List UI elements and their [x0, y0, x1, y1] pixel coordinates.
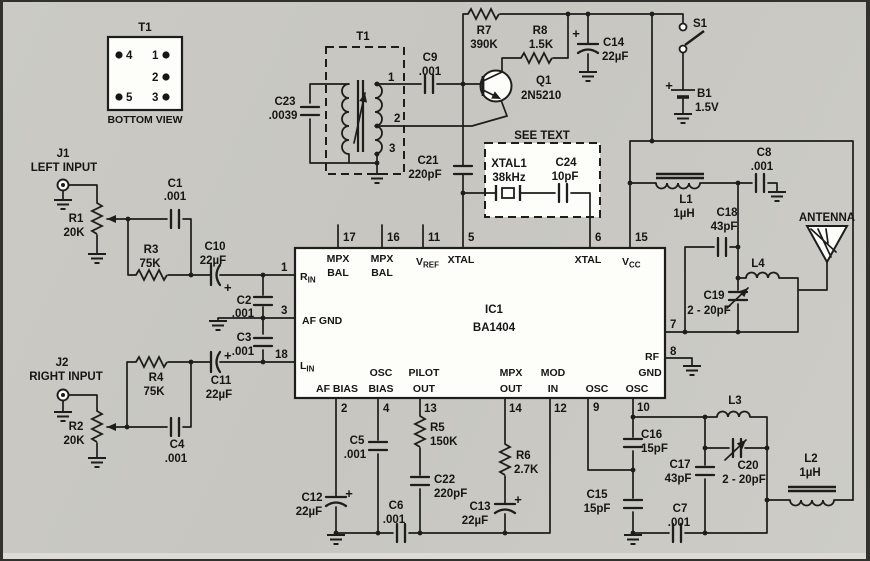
ground-icon — [209, 321, 227, 330]
ic-pin-name-bal17: BAL — [327, 267, 349, 279]
c19-ref: C19 — [703, 290, 724, 302]
r1-wiper-arrow — [107, 215, 116, 223]
ground-icon — [88, 254, 106, 263]
junction-dot — [261, 360, 266, 365]
c14-ref: C14 — [603, 37, 625, 49]
c1-ref: C1 — [168, 178, 183, 190]
ground-icon — [683, 366, 701, 375]
c3-symbol — [254, 338, 272, 346]
c15-ref: C15 — [586, 489, 608, 501]
ground-icon — [88, 458, 106, 467]
r6-value: 2.7K — [514, 464, 539, 476]
c6-value: .001 — [383, 514, 406, 526]
c5-value: .001 — [344, 449, 367, 461]
l2-core-bars — [788, 487, 836, 491]
c23-ref: C23 — [274, 96, 295, 108]
c12-symbol — [326, 497, 346, 506]
pin-10: 10 — [637, 402, 650, 414]
r2-value: 20K — [63, 435, 85, 447]
ic-pin-name-mpx16: MPX — [371, 253, 394, 265]
pin-3: 3 — [281, 305, 287, 317]
r5-value: 150K — [430, 436, 458, 448]
ic-pin-name-mod-in: IN — [548, 383, 559, 395]
c18-value: 43pF — [711, 221, 738, 233]
junction-dot — [628, 181, 633, 186]
r1-ref: R1 — [69, 213, 84, 225]
s1-ref: S1 — [693, 18, 708, 30]
pin-18: 18 — [275, 349, 288, 361]
ic-pin-name-osc9: OSC — [586, 383, 609, 395]
c24-ref: C24 — [555, 157, 577, 169]
l1-ref: L1 — [679, 194, 693, 206]
l4-ref: L4 — [751, 258, 765, 270]
c4-value: .001 — [165, 453, 188, 465]
c23-value: .0039 — [269, 110, 298, 122]
t1-tap1: 1 — [388, 72, 395, 84]
junction-dot — [736, 245, 741, 250]
junction-dot — [503, 531, 508, 536]
ic-pin-name-mpx-out: OUT — [500, 383, 523, 395]
ic-pin-name-rf-gnd: GND — [638, 367, 662, 379]
q1-transistor-symbol — [481, 71, 512, 103]
c14-polarity: + — [572, 26, 580, 41]
detail-ref: T1 — [138, 22, 152, 34]
schematic-paper: T1 4 1 2 5 3 BOTTOM VIEW J1 LEFT INPUT J… — [3, 2, 866, 553]
l2-coil — [790, 500, 834, 506]
c10-polarity: + — [224, 280, 232, 295]
c7-value: .001 — [668, 517, 691, 529]
junction-dot — [189, 360, 194, 365]
c3-value: .001 — [232, 346, 255, 358]
junction-dot — [375, 124, 380, 129]
c2-ref: C2 — [237, 295, 252, 307]
xtal1-ref: XTAL1 — [491, 158, 527, 170]
c9-ref: C9 — [423, 52, 438, 64]
junction-dot — [703, 531, 708, 536]
junction-dot — [461, 191, 466, 196]
r8-value: 1.5K — [529, 39, 554, 51]
junction-dot — [650, 139, 655, 144]
detail-pin2: 2 — [152, 72, 158, 84]
l1-core-bars — [656, 174, 704, 178]
r5-symbol — [415, 416, 425, 447]
l3-coil — [717, 412, 750, 418]
junction-dot — [375, 82, 380, 87]
c9-value: .001 — [419, 66, 442, 78]
c17-value: 43pF — [665, 473, 692, 485]
c13-value: 22µF — [462, 515, 488, 527]
t1-ref: T1 — [356, 31, 370, 43]
junction-dot — [631, 415, 636, 420]
junction-dot — [765, 498, 770, 503]
pin-15: 15 — [635, 232, 648, 244]
t1-tap2: 2 — [394, 113, 400, 125]
t1-primary-coil — [342, 84, 349, 154]
c20-ref: C20 — [737, 460, 758, 472]
c5-ref: C5 — [350, 435, 365, 447]
c13-polarity: + — [514, 492, 522, 507]
c5-symbol — [369, 442, 387, 450]
junction-dot — [703, 415, 708, 420]
c8-ref: C8 — [757, 147, 772, 159]
pin-5: 5 — [468, 232, 475, 244]
c22-symbol — [411, 477, 429, 485]
scan-bottom-strip — [3, 553, 866, 559]
ground-icon — [368, 174, 386, 183]
wiring-oscillator-tank — [588, 398, 853, 533]
b1-ref: B1 — [697, 88, 712, 100]
detail-pin1-dot — [162, 51, 169, 58]
ground-icon — [624, 535, 642, 544]
junction-dot — [736, 181, 741, 186]
fm-transmitter-schematic: T1 4 1 2 5 3 BOTTOM VIEW J1 LEFT INPUT J… — [3, 2, 866, 553]
vref-main: V — [416, 256, 423, 268]
detail-pin5: 5 — [126, 92, 133, 104]
ground-icon — [54, 200, 72, 209]
ground-icon — [327, 535, 345, 544]
junction-dot — [683, 330, 688, 335]
r2-wiper-arrow — [107, 423, 116, 431]
vref-sub: REF — [423, 261, 439, 270]
l4-coil — [746, 273, 779, 279]
t1-bottom-view-detail — [108, 37, 182, 110]
c13-ref: C13 — [469, 501, 490, 513]
pin-4: 4 — [383, 403, 390, 415]
rin-sub: IN — [308, 276, 316, 285]
c16-value: 15pF — [641, 443, 668, 455]
c19-value: 2 - 20pF — [687, 305, 730, 317]
detail-pin1: 1 — [152, 50, 159, 62]
junction-dot — [586, 12, 591, 17]
c14-value: 22µF — [602, 51, 628, 63]
c7-ref: C7 — [673, 503, 688, 515]
pin-17: 17 — [343, 232, 356, 244]
t1-tap3: 3 — [389, 143, 395, 155]
ground-icon — [54, 412, 72, 421]
ground-icon — [768, 192, 786, 201]
ic-pin-name-osc10: OSC — [626, 383, 649, 395]
junction-dot — [189, 273, 194, 278]
c17-ref: C17 — [669, 459, 690, 471]
see-text-note: SEE TEXT — [514, 130, 570, 142]
t1-transformer-symbol — [342, 80, 382, 154]
ic-pin-name-mod: MOD — [541, 367, 566, 379]
detail-pin4: 4 — [126, 50, 133, 62]
pin-11: 11 — [428, 232, 441, 244]
junction-dot — [765, 446, 770, 451]
b1-battery-symbol — [671, 90, 695, 97]
detail-pin3: 3 — [152, 92, 158, 104]
c12-polarity: + — [345, 486, 353, 501]
r7-symbol — [468, 9, 499, 19]
c12-ref: C12 — [301, 492, 322, 504]
j2-ref: J2 — [56, 357, 69, 369]
r2-ref: R2 — [69, 421, 84, 433]
ground-icon — [579, 72, 597, 81]
c6-symbol — [397, 524, 405, 542]
c1-symbol — [171, 210, 179, 228]
xtal1-value: 38kHz — [492, 172, 525, 184]
ic1-part: BA1404 — [473, 322, 516, 334]
ic1-ref: IC1 — [485, 304, 504, 316]
ic-pin-name-bal16: BAL — [371, 267, 393, 279]
q1-ref: Q1 — [536, 75, 552, 87]
ic-pin-name-mpx14: MPX — [500, 367, 523, 379]
c14-symbol — [578, 44, 598, 53]
c16-symbol — [624, 439, 642, 447]
q1-value: 2N5210 — [521, 90, 561, 102]
pin-2: 2 — [341, 403, 347, 415]
detail-pin4-dot — [115, 51, 122, 58]
r4-ref: R4 — [149, 372, 164, 384]
c22-ref: C22 — [434, 474, 455, 486]
c4-symbol — [171, 418, 179, 436]
r4-value: 75K — [143, 386, 165, 398]
r2-symbol — [92, 411, 102, 442]
ic-pin-name-pilot-out: OUT — [413, 383, 436, 395]
lin-sub: IN — [306, 365, 314, 374]
detail-view-caption: BOTTOM VIEW — [107, 114, 182, 126]
c11-polarity: + — [224, 348, 232, 363]
pin-7: 7 — [670, 319, 676, 331]
c1-value: .001 — [164, 191, 187, 203]
detail-pin2-dot — [162, 73, 169, 80]
ic-pin-name-xtal5: XTAL — [448, 254, 475, 266]
r6-symbol — [500, 444, 510, 475]
junction-dot — [125, 425, 130, 430]
c18-symbol — [718, 238, 726, 256]
l2-ref: L2 — [804, 453, 817, 465]
ic-pin-name-rf: RF — [645, 351, 660, 363]
junction-dot — [418, 531, 423, 536]
ic-pin-name-bias4: BIAS — [368, 383, 393, 395]
junction-dot — [261, 316, 266, 321]
c21-ref: C21 — [417, 155, 439, 167]
r1-value: 20K — [63, 227, 85, 239]
c15-symbol — [624, 500, 642, 508]
junction-dot — [376, 531, 381, 536]
vcc-main: V — [622, 256, 629, 268]
junction-dot — [375, 161, 380, 166]
c2-symbol — [254, 297, 272, 305]
antenna-symbol — [807, 226, 847, 262]
c10-symbol — [211, 265, 220, 285]
c11-value: 22µF — [206, 389, 232, 401]
r8-symbol — [521, 53, 552, 63]
l1-coil — [656, 183, 700, 189]
c8-symbol — [756, 174, 764, 192]
pin-14: 14 — [509, 403, 522, 415]
ic-pin-name-osc4: OSC — [370, 367, 393, 379]
l3-ref: L3 — [728, 395, 741, 407]
c2-value: .001 — [232, 308, 255, 320]
t1-secondary-coil — [375, 84, 382, 154]
r3-ref: R3 — [144, 244, 159, 256]
c12-value: 22µF — [296, 506, 322, 518]
r3-value: 75K — [139, 258, 161, 270]
pin-1: 1 — [281, 262, 288, 274]
c13-symbol — [495, 504, 515, 513]
c10-value: 22µF — [200, 255, 226, 267]
c16-ref: C16 — [641, 429, 662, 441]
ic-pin-name-pilot: PILOT — [409, 367, 441, 379]
c21-value: 220pF — [408, 169, 441, 181]
l1-value: 1µH — [673, 208, 694, 220]
junction-dot — [631, 468, 636, 473]
ic-pin-name-mpx17: MPX — [327, 253, 350, 265]
detail-pin3-dot — [162, 93, 169, 100]
c3-ref: C3 — [237, 332, 252, 344]
c11-ref: C11 — [211, 375, 232, 387]
c8-value: .001 — [751, 161, 774, 173]
c11-symbol — [211, 352, 220, 372]
b1-value: 1.5V — [695, 102, 719, 114]
j2-label: RIGHT INPUT — [29, 371, 102, 383]
j1-jack-symbol — [58, 180, 69, 191]
pin-16: 16 — [387, 232, 400, 244]
junction-dot — [703, 446, 708, 451]
r6-ref: R6 — [516, 450, 531, 462]
ic-pin-name-af-bias: AF BIAS — [316, 383, 358, 395]
pin-8: 8 — [670, 346, 677, 358]
ic-pin-name-xtal6: XTAL — [575, 254, 602, 266]
pin-9: 9 — [593, 402, 599, 414]
c17-symbol — [696, 467, 714, 475]
junction-dot — [126, 217, 131, 222]
pin-13: 13 — [424, 403, 437, 415]
scanned-schematic-frame: T1 4 1 2 5 3 BOTTOM VIEW J1 LEFT INPUT J… — [0, 0, 870, 561]
detail-pin5-dot — [115, 93, 122, 100]
junction-dot — [736, 276, 741, 281]
c10-ref: C10 — [204, 241, 225, 253]
c24-value: 10pF — [552, 171, 579, 183]
r4-symbol — [136, 357, 167, 367]
pin-6: 6 — [595, 232, 601, 244]
junction-dot — [566, 12, 571, 17]
c21-symbol — [454, 166, 472, 174]
r7-ref: R7 — [477, 25, 492, 37]
c20-value: 2 - 20pF — [722, 474, 765, 486]
junction-dot — [375, 152, 380, 157]
ic-pin-name-af-gnd: AF GND — [302, 315, 343, 327]
vcc-sub: CC — [629, 261, 641, 270]
c15-value: 15pF — [584, 503, 611, 515]
ground-icon — [674, 114, 692, 123]
r3-symbol — [136, 270, 167, 280]
r8-ref: R8 — [533, 25, 548, 37]
j1-label: LEFT INPUT — [31, 162, 97, 174]
junction-dot — [650, 12, 655, 17]
c4-ref: C4 — [170, 439, 185, 451]
c6-ref: C6 — [389, 500, 404, 512]
c18-ref: C18 — [716, 207, 738, 219]
junction-dot — [461, 82, 466, 87]
r7-value: 390K — [470, 39, 498, 51]
b1-polarity: + — [665, 78, 673, 93]
junction-dot — [261, 273, 266, 278]
junction-dot — [736, 330, 741, 335]
c23-symbol — [301, 107, 319, 115]
j2-jack-symbol — [58, 390, 69, 401]
r1-symbol — [92, 203, 102, 234]
antenna-label: ANTENNA — [799, 212, 855, 224]
c22-value: 220pF — [434, 488, 467, 500]
pin-12: 12 — [554, 403, 567, 415]
l2-value: 1µH — [799, 467, 820, 479]
j1-ref: J1 — [57, 148, 70, 160]
r5-ref: R5 — [430, 422, 445, 434]
